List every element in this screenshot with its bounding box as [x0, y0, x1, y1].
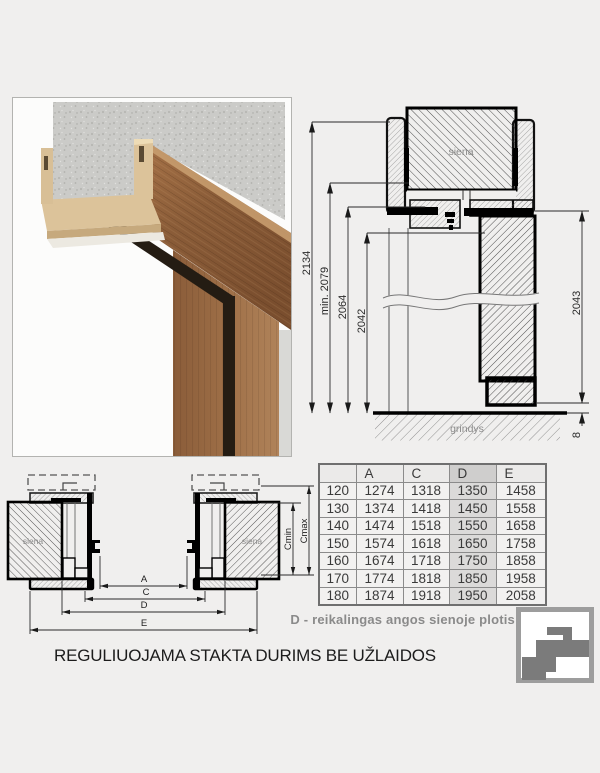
wall-label-right: siena — [242, 536, 263, 546]
table-cell: 1750 — [449, 552, 496, 570]
table-cell: 1950 — [449, 587, 496, 605]
table-cell: 1374 — [356, 500, 403, 518]
table-cell: 1774 — [356, 570, 403, 588]
wall-label-left: siena — [23, 536, 44, 546]
table-cell: 1818 — [403, 570, 449, 588]
table-cell: 130 — [319, 500, 356, 518]
dimensions-table: ACDE 12012741318135014581301374141814501… — [318, 463, 547, 606]
table-cell: 1850 — [449, 570, 496, 588]
table-cell: 1418 — [403, 500, 449, 518]
spec-sheet: { "page": { "background": "#f0efee", "ti… — [0, 0, 600, 773]
wall-edge — [279, 330, 291, 456]
table-cell: 1318 — [403, 482, 449, 500]
gasket-groove — [223, 296, 235, 456]
frame-corner-photo-art — [13, 98, 291, 456]
table-cell: 1758 — [496, 535, 546, 553]
dim-e: E — [141, 618, 147, 629]
page-title: REGULIUOJAMA STAKTA DURIMS BE UŽLAIDOS — [0, 646, 490, 666]
table-cell: 1558 — [496, 500, 546, 518]
table-cell: 1274 — [356, 482, 403, 500]
table-cell: 1574 — [356, 535, 403, 553]
table-cell: 150 — [319, 535, 356, 553]
table-cell: 1650 — [449, 535, 496, 553]
table-cell: 1674 — [356, 552, 403, 570]
table-cell: 140 — [319, 517, 356, 535]
table-cell: 1874 — [356, 587, 403, 605]
dim-door-leaf: 2043 — [571, 291, 583, 315]
table-row: 1501574161816501758 — [319, 535, 546, 553]
table-cell: 1618 — [403, 535, 449, 553]
table-cell: 1958 — [496, 570, 546, 588]
dim-total-height: 2134 — [301, 251, 313, 275]
dim-cmin: Cmin — [283, 528, 294, 550]
vertical-section-drawing: siena grindys 2134 min. 2079 2064 2042 — [295, 95, 600, 460]
frame-head-assembly — [387, 108, 534, 230]
floor-label: grindys — [450, 423, 484, 435]
table-row: 1301374141814501558 — [319, 500, 546, 518]
dim-frame-inner: 2042 — [356, 309, 368, 333]
table-cell: 1450 — [449, 500, 496, 518]
table-cell: 1518 — [403, 517, 449, 535]
dim-min-height: min. 2079 — [319, 267, 331, 315]
dim-frame-outer: 2064 — [337, 295, 349, 319]
door-leaf-section — [389, 216, 535, 413]
dimension-note: D - reikalingas angos sienoje plotis — [250, 612, 515, 627]
table-row: 1701774181818501958 — [319, 570, 546, 588]
leaf-dimensions — [535, 211, 589, 426]
table-row: 1801874191819502058 — [319, 587, 546, 605]
table-row: 1401474151815501658 — [319, 517, 546, 535]
jamb-right — [187, 475, 279, 589]
wall-label: siena — [448, 146, 473, 158]
table-cell: 1350 — [449, 482, 496, 500]
dim-d: D — [141, 600, 148, 611]
table-row: 1601674171817501858 — [319, 552, 546, 570]
table-row: 1201274131813501458 — [319, 482, 546, 500]
brand-logo — [516, 607, 594, 683]
table-cell: 1474 — [356, 517, 403, 535]
dim-c: C — [143, 587, 150, 598]
dim-floor-gap: 8 — [571, 432, 583, 438]
dimensions-table-grid: ACDE 12012741318135014581301374141814501… — [318, 463, 547, 606]
table-body: 1201274131813501458130137414181450155814… — [319, 482, 546, 605]
table-cell: 180 — [319, 587, 356, 605]
table-cell: 1718 — [403, 552, 449, 570]
table-header-cell: E — [496, 464, 546, 482]
dim-cmax: Cmax — [299, 518, 310, 543]
table-header-cell: D — [449, 464, 496, 482]
table-cell: 160 — [319, 552, 356, 570]
table-cell: 1550 — [449, 517, 496, 535]
table-header-cell — [319, 464, 356, 482]
table-header-cell: A — [356, 464, 403, 482]
table-cell: 1658 — [496, 517, 546, 535]
table-cell: 1918 — [403, 587, 449, 605]
dim-a: A — [141, 574, 148, 585]
table-cell: 120 — [319, 482, 356, 500]
jamb-left — [8, 475, 100, 589]
table-cell: 1858 — [496, 552, 546, 570]
table-cell: 2058 — [496, 587, 546, 605]
table-cell: 170 — [319, 570, 356, 588]
frame-corner-photo — [12, 97, 292, 457]
table-cell: 1458 — [496, 482, 546, 500]
table-head: ACDE — [319, 464, 546, 482]
table-header-cell: C — [403, 464, 449, 482]
